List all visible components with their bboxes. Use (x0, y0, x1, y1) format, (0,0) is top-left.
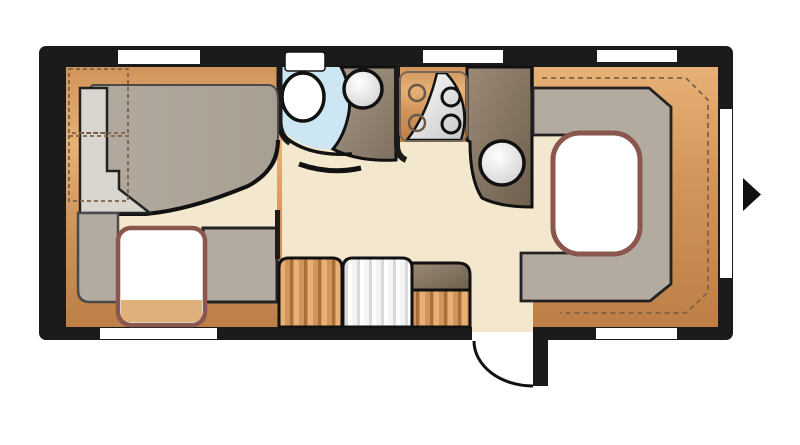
floorplan-drawing (0, 0, 800, 445)
caravan-floorplan (0, 0, 800, 445)
door-opening (472, 332, 533, 342)
window-bottom-right (596, 328, 677, 339)
window-side-right (720, 109, 732, 278)
lower-cabinets (279, 258, 470, 327)
fridge-cabinet (343, 258, 412, 327)
front-bench-right (203, 228, 277, 302)
direction-arrow-icon (743, 178, 761, 211)
window-top-middle (423, 50, 503, 63)
window-top-right (597, 50, 677, 62)
washbasin (344, 70, 382, 108)
front-bench-left (78, 213, 118, 302)
window-top-left (118, 50, 200, 64)
toilet-cistern (285, 52, 325, 71)
tambour-cabinet (279, 258, 342, 327)
entrance-door (472, 327, 533, 386)
window-bottom-left (100, 328, 217, 339)
door-post (533, 340, 548, 386)
toilet (282, 73, 324, 121)
front-table-over-wood (121, 300, 202, 322)
dresser-base (412, 290, 470, 327)
dresser-top (412, 263, 470, 290)
door-threshold (472, 327, 533, 332)
door-swing-arc (474, 341, 533, 386)
kitchen-sink (480, 141, 524, 185)
dinette-table (553, 133, 640, 254)
